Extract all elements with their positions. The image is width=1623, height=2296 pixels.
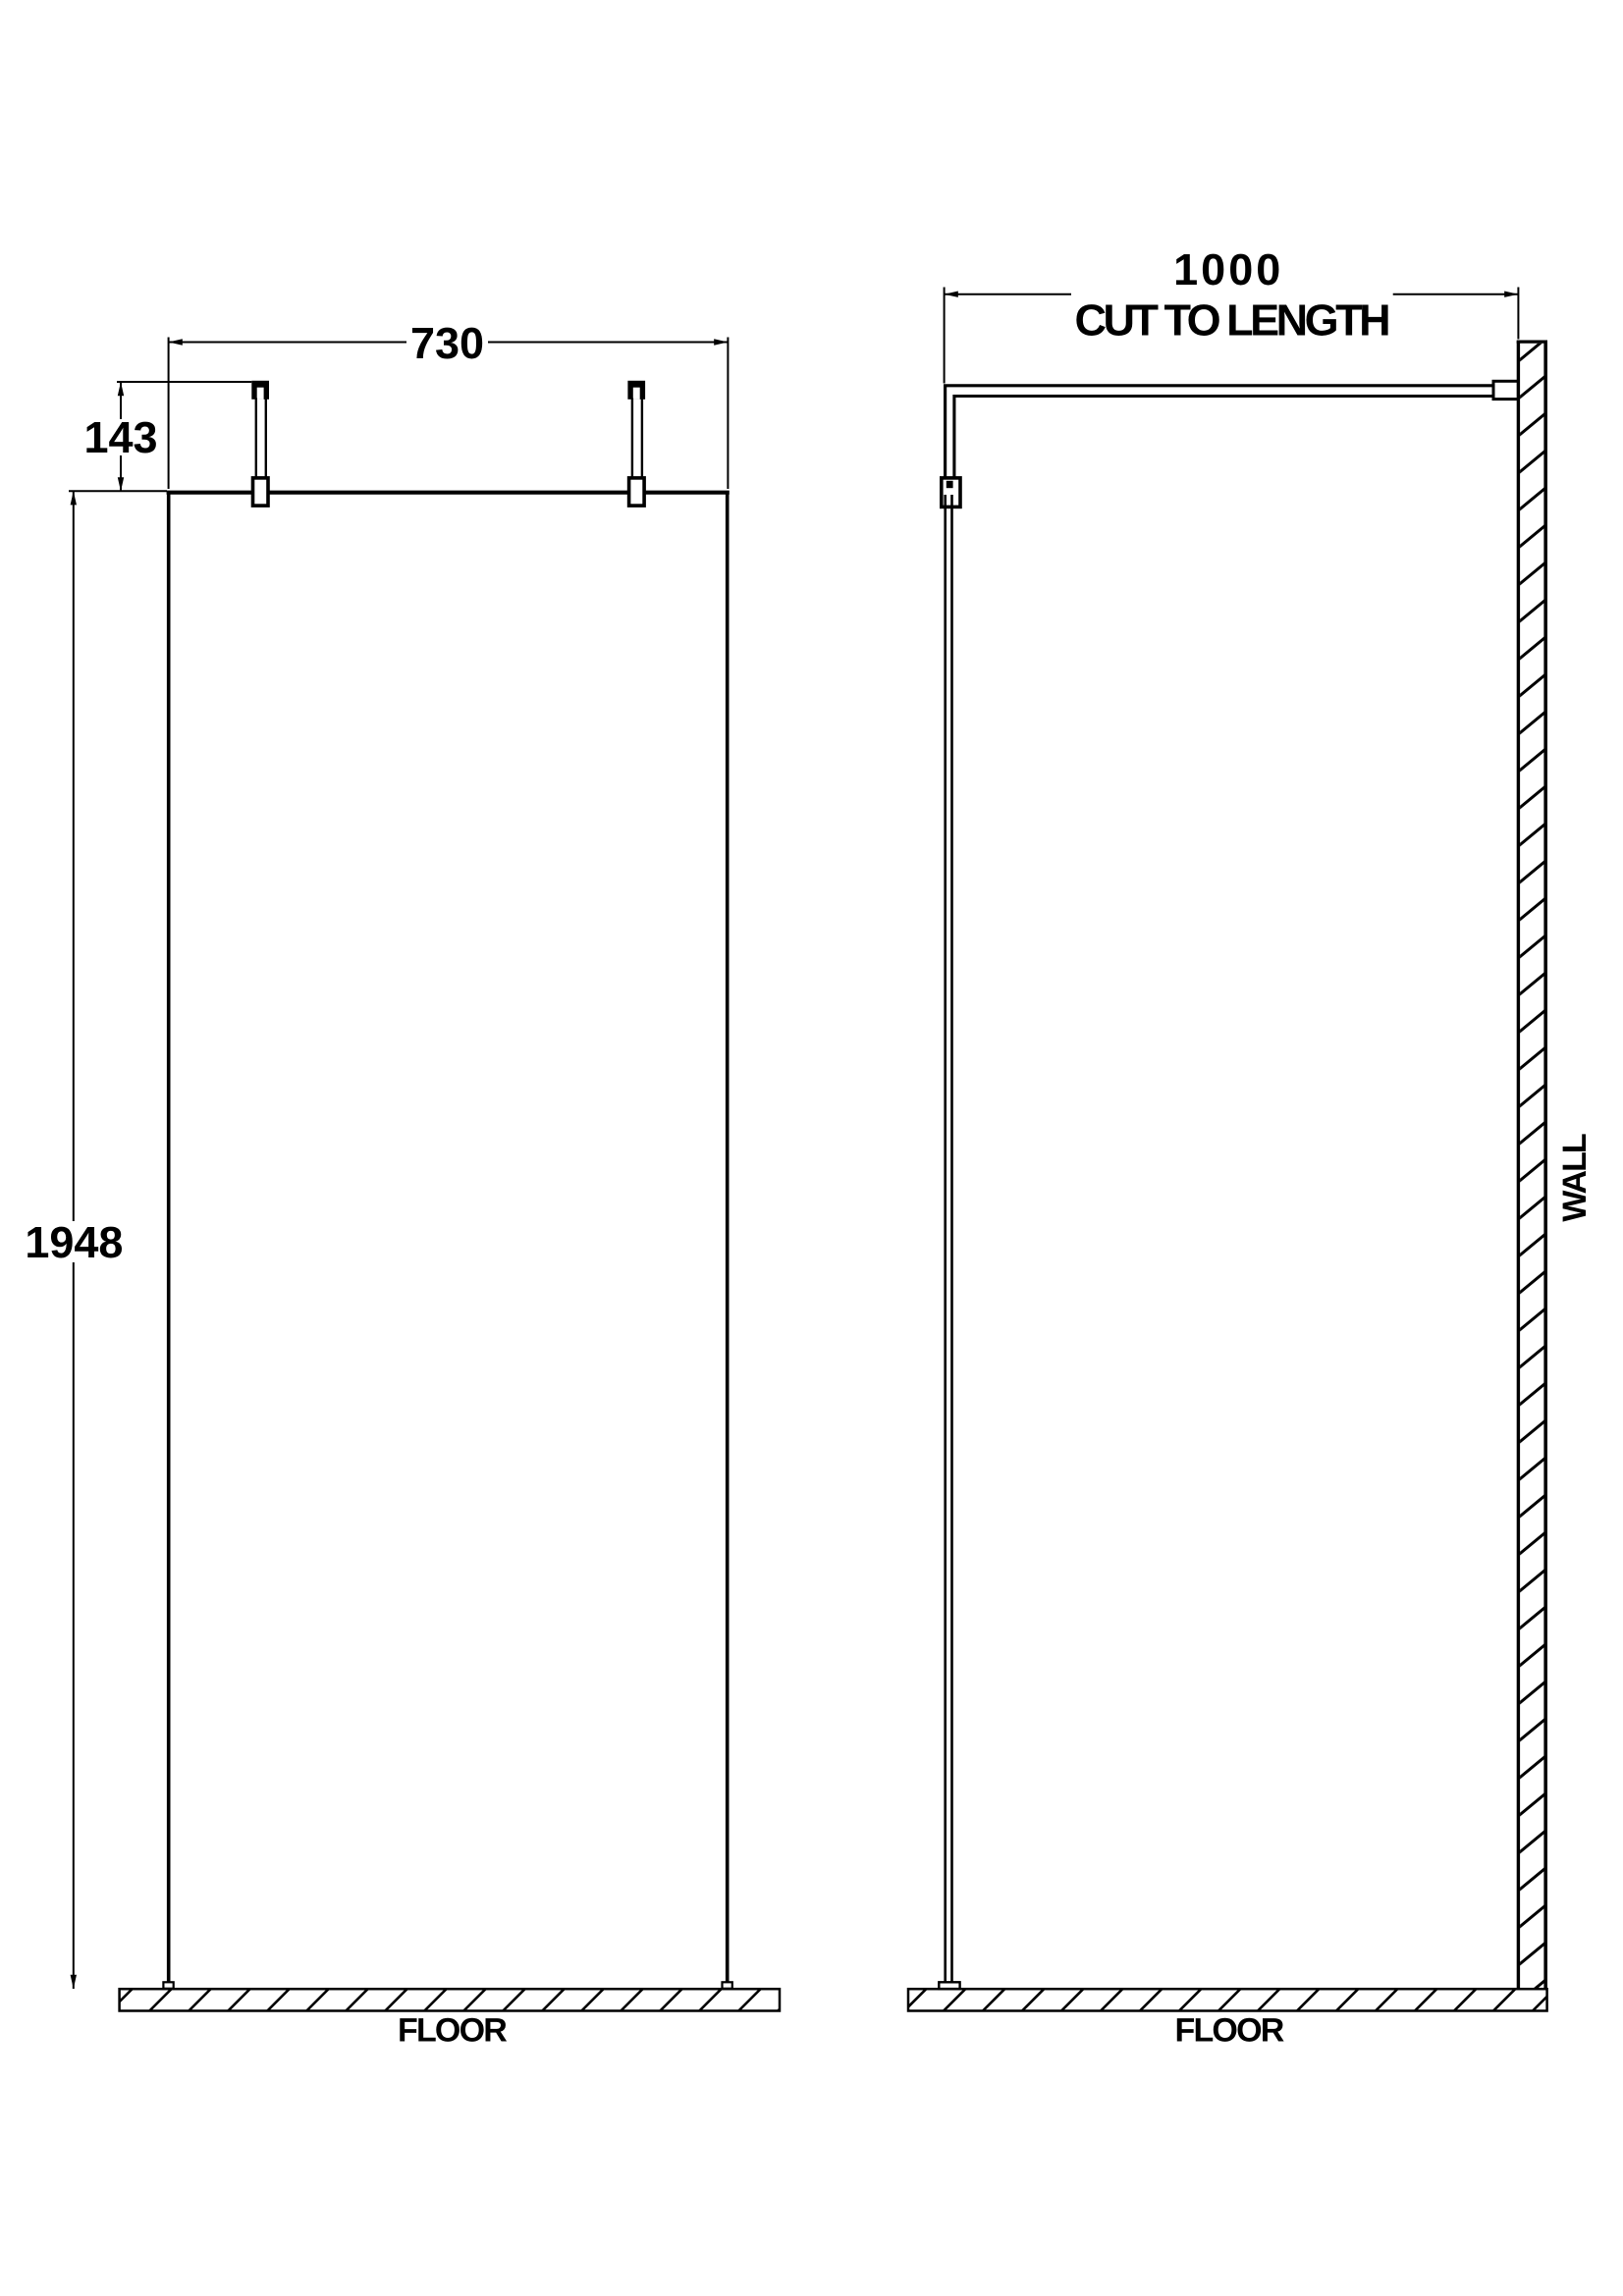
svg-text:CUT TO LENGTH: CUT TO LENGTH: [1074, 295, 1388, 346]
svg-text:730: 730: [410, 318, 484, 368]
svg-text:FLOOR: FLOOR: [1175, 2011, 1284, 2049]
svg-text:WALL: WALL: [1556, 1134, 1594, 1222]
svg-text:FLOOR: FLOOR: [398, 2011, 507, 2049]
svg-text:143: 143: [83, 412, 157, 462]
svg-text:1000: 1000: [1173, 244, 1283, 294]
svg-text:1948: 1948: [25, 1217, 123, 1267]
